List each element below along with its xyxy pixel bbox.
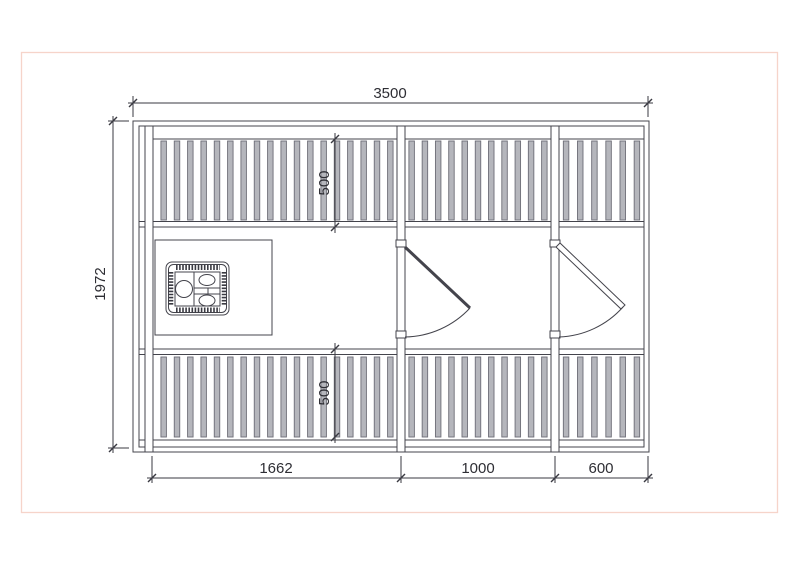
bench-slat: [188, 357, 194, 437]
bench-slat: [294, 141, 300, 220]
bench-slat: [634, 357, 640, 437]
door-right-bottom-jamb-block: [550, 331, 560, 338]
bench-slat: [201, 357, 207, 437]
middle-post-2: [551, 126, 559, 452]
bench-slat: [475, 141, 481, 220]
dim-top-bench-label: 500: [316, 170, 333, 195]
bench-slat: [254, 357, 260, 437]
bench-slat: [422, 357, 428, 437]
bench-slat: [254, 141, 260, 220]
bench-slat: [542, 357, 548, 437]
bench-slat: [489, 141, 495, 220]
bench-slat: [606, 357, 612, 437]
bench-slat: [620, 141, 626, 220]
bench-slat: [528, 141, 534, 220]
dim-bay-middle-label: 1000: [461, 460, 494, 477]
bench-slat: [161, 357, 167, 437]
bench-slat: [361, 141, 367, 220]
bench-slat: [449, 141, 455, 220]
left-post: [145, 126, 153, 452]
door-left: [396, 240, 470, 338]
bench-slat: [489, 357, 495, 437]
bench-slat: [348, 141, 354, 220]
bench-slat: [462, 357, 468, 437]
bench-slat: [515, 141, 521, 220]
bench-slat: [462, 141, 468, 220]
bench-slat: [592, 141, 598, 220]
door-right-leaf: [556, 243, 625, 309]
bench-slat: [435, 141, 441, 220]
bench-slat: [592, 357, 598, 437]
bench-slat: [578, 141, 584, 220]
dim-overall-width-label: 3500: [373, 85, 406, 102]
bench-slat: [515, 357, 521, 437]
bench-slat: [528, 357, 534, 437]
door-left-bottom-jamb-block: [396, 331, 406, 338]
bench-slat: [241, 141, 247, 220]
bench-slat: [409, 141, 415, 220]
bench-slat: [634, 141, 640, 220]
bench-slat: [228, 141, 234, 220]
bench-slat: [281, 141, 287, 220]
door-left-swing-arc: [405, 308, 470, 337]
door-right: [550, 240, 625, 338]
bench-slat: [409, 357, 415, 437]
bench-slat: [188, 141, 194, 220]
bench-slat: [578, 357, 584, 437]
bench-slat: [268, 141, 274, 220]
floor-plan: [133, 121, 649, 452]
bench-slat: [374, 141, 380, 220]
door-left-leaf: [405, 247, 470, 308]
bench-slat: [388, 141, 394, 220]
bench-slat: [502, 357, 508, 437]
bench-slat: [542, 141, 548, 220]
bench-slat: [174, 357, 180, 437]
bench-slat: [563, 141, 569, 220]
middle-post-1: [397, 126, 405, 452]
bench-slat: [241, 357, 247, 437]
door-left-top-hinge-block: [396, 240, 406, 247]
bench-slat: [214, 357, 220, 437]
floor-plan-drawing: 3500 1972 500 500 1662 1000 600: [0, 0, 800, 566]
bench-slat: [308, 141, 314, 220]
bench-slat: [214, 141, 220, 220]
bench-slat: [475, 357, 481, 437]
dim-bottom-bench-label: 500: [316, 380, 333, 405]
dim-bottom-bays: [147, 456, 653, 483]
bench-slat: [228, 357, 234, 437]
bench-slat: [388, 357, 394, 437]
bench-slat: [563, 357, 569, 437]
dim-bay-right-label: 600: [588, 460, 613, 477]
bench-slat: [281, 357, 287, 437]
dim-overall-depth: [108, 116, 129, 453]
bench-slat: [348, 357, 354, 437]
bench-slat: [174, 141, 180, 220]
bench-slat: [422, 141, 428, 220]
bench-slat: [374, 357, 380, 437]
dim-bay-left-label: 1662: [259, 460, 292, 477]
bench-slat: [502, 141, 508, 220]
bench-slat: [294, 357, 300, 437]
bench-slat: [161, 141, 167, 220]
bench-slat: [308, 357, 314, 437]
bench-slat: [449, 357, 455, 437]
bench-slat: [620, 357, 626, 437]
bench-slat: [268, 357, 274, 437]
dim-overall-depth-label: 1972: [92, 267, 109, 300]
door-right-swing-arc: [559, 307, 623, 337]
drawing-sheet: 3500 1972 500 500 1662 1000 600: [0, 0, 800, 566]
bench-slat: [606, 141, 612, 220]
bench-slat: [361, 357, 367, 437]
bench-slat: [435, 357, 441, 437]
bench-slat: [201, 141, 207, 220]
sauna-stove: [166, 262, 229, 315]
